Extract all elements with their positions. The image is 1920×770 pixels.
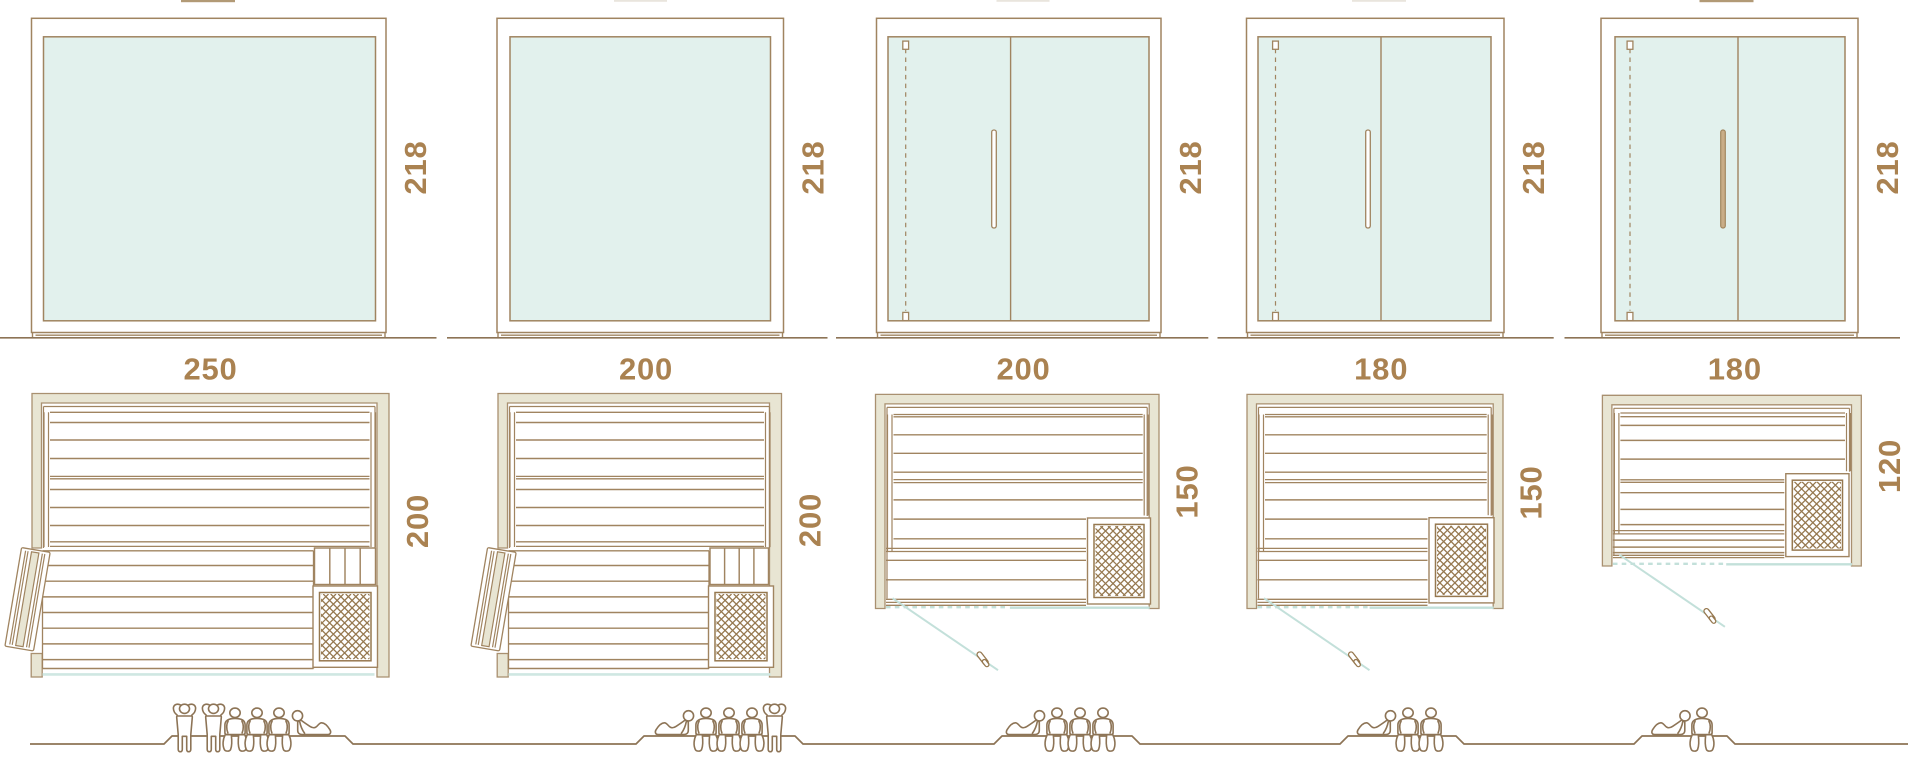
svg-text:150: 150	[1514, 465, 1549, 519]
svg-text:180: 180	[1708, 352, 1762, 387]
svg-text:218: 218	[796, 140, 831, 194]
svg-text:200: 200	[619, 352, 673, 387]
svg-text:218: 218	[1173, 140, 1208, 194]
svg-text:218: 218	[1516, 140, 1551, 194]
svg-text:180: 180	[1354, 352, 1408, 387]
svg-text:200: 200	[996, 352, 1050, 387]
svg-text:200: 200	[400, 494, 435, 548]
svg-text:218: 218	[1870, 140, 1905, 194]
svg-text:200: 200	[793, 493, 828, 547]
svg-text:218: 218	[398, 140, 433, 194]
svg-text:120: 120	[1872, 439, 1907, 493]
svg-text:250: 250	[183, 352, 237, 387]
svg-text:150: 150	[1170, 464, 1205, 518]
